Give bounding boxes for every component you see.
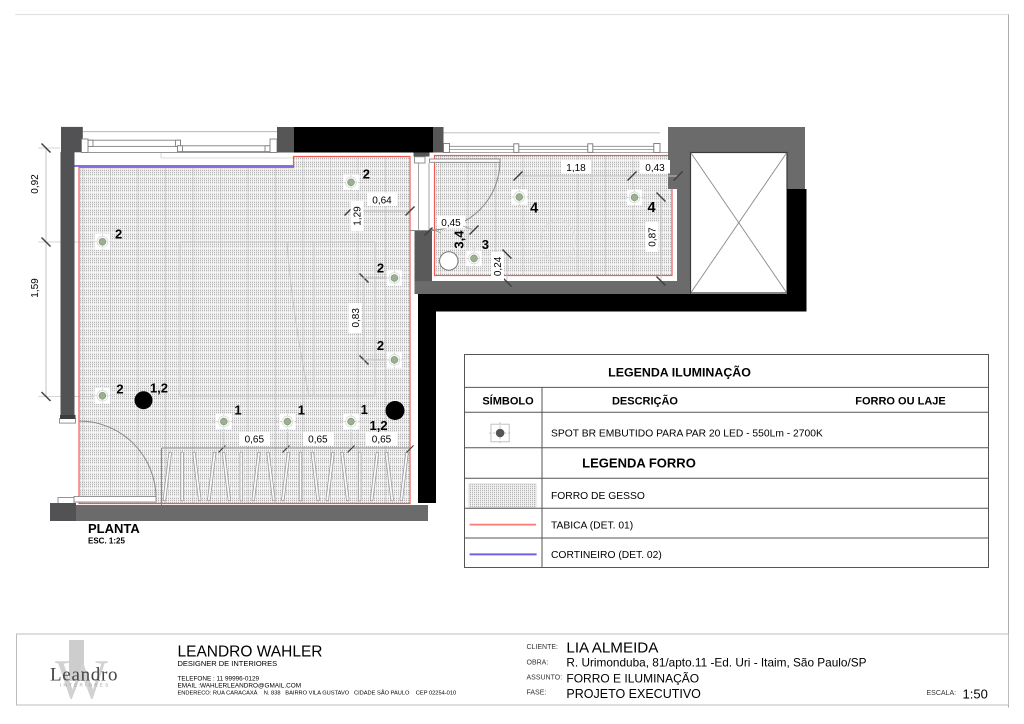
svg-text:ENDERECO: RUA CARACAXÁ N. 8: ENDERECO: RUA CARACAXÁ N. 838 BAIRRO VIL… <box>178 690 457 697</box>
svg-text:LEGENDA FORRO: LEGENDA FORRO <box>582 456 696 471</box>
svg-text:0,24: 0,24 <box>493 256 504 276</box>
svg-text:R. Urimonduba, 81/apto.11 -Ed.: R. Urimonduba, 81/apto.11 -Ed. Uri - Ita… <box>566 656 866 670</box>
svg-text:FORRO DE GESSO: FORRO DE GESSO <box>551 491 645 502</box>
svg-text:CLIENTE:: CLIENTE: <box>527 644 559 651</box>
svg-text:3,4: 3,4 <box>451 230 466 249</box>
svg-text:2: 2 <box>377 261 384 276</box>
svg-text:3: 3 <box>482 237 489 252</box>
svg-text:LEGENDA ILUMINAÇÃO: LEGENDA ILUMINAÇÃO <box>608 365 751 380</box>
svg-text:TABICA (DET. 01): TABICA (DET. 01) <box>551 520 633 531</box>
svg-text:0,43: 0,43 <box>645 163 665 174</box>
svg-text:4: 4 <box>530 201 538 217</box>
svg-text:1:50: 1:50 <box>963 687 988 702</box>
svg-text:SÍMBOLO: SÍMBOLO <box>482 395 534 408</box>
svg-text:SPOT BR EMBUTIDO PARA PAR 20 L: SPOT BR EMBUTIDO PARA PAR 20 LED - 550Lm… <box>551 429 823 440</box>
svg-text:CORTINEIRO (DET. 02): CORTINEIRO (DET. 02) <box>551 550 662 561</box>
svg-text:OBRA:: OBRA: <box>527 659 549 666</box>
svg-text:LEANDRO WAHLER: LEANDRO WAHLER <box>178 644 323 661</box>
svg-text:0,65: 0,65 <box>308 435 328 446</box>
svg-text:1,29: 1,29 <box>353 206 364 226</box>
svg-text:1: 1 <box>361 402 368 417</box>
svg-text:4: 4 <box>648 200 656 216</box>
svg-text:FORRO E ILUMINAÇÃO: FORRO E ILUMINAÇÃO <box>566 672 699 686</box>
svg-text:LIA ALMEIDA: LIA ALMEIDA <box>566 639 659 656</box>
svg-text:0,83: 0,83 <box>351 308 362 328</box>
svg-text:ESCALA:: ESCALA: <box>927 690 957 697</box>
svg-text:DESCRIÇÃO: DESCRIÇÃO <box>612 395 678 408</box>
svg-text:0,45: 0,45 <box>441 218 461 229</box>
svg-text:1,18: 1,18 <box>566 163 586 174</box>
svg-text:2: 2 <box>377 338 384 353</box>
svg-text:PROJETO EXECUTIVO: PROJETO EXECUTIVO <box>566 687 701 701</box>
svg-text:0,65: 0,65 <box>372 435 392 446</box>
svg-text:1: 1 <box>298 403 305 418</box>
svg-text:0,92: 0,92 <box>30 174 41 194</box>
svg-text:1,59: 1,59 <box>30 278 41 298</box>
svg-text:1,2: 1,2 <box>150 380 168 395</box>
svg-text:TELEFONE : 11 99996-0129: TELEFONE : 11 99996-0129 <box>178 676 260 683</box>
svg-text:1,2: 1,2 <box>370 418 388 433</box>
svg-text:ESC. 1:25: ESC. 1:25 <box>88 537 125 546</box>
svg-text:FASE:: FASE: <box>527 689 547 696</box>
svg-text:EMAIL :WAHLERLEANDRO@GMAIL.COM: EMAIL :WAHLERLEANDRO@GMAIL.COM <box>178 683 302 690</box>
svg-text:DESIGNER DE INTERIORES: DESIGNER DE INTERIORES <box>178 659 278 668</box>
svg-text:PLANTA: PLANTA <box>88 521 140 536</box>
svg-text:2: 2 <box>116 382 123 397</box>
svg-text:FORRO OU LAJE: FORRO OU LAJE <box>855 396 945 408</box>
svg-text:0,65: 0,65 <box>245 435 265 446</box>
svg-text:0,87: 0,87 <box>648 227 659 247</box>
svg-text:1: 1 <box>234 403 241 418</box>
svg-text:INTERIORES: INTERIORES <box>60 683 111 688</box>
svg-text:0,64: 0,64 <box>372 196 392 207</box>
svg-text:2: 2 <box>115 227 122 242</box>
svg-text:2: 2 <box>363 167 370 182</box>
svg-text:ASSUNTO:: ASSUNTO: <box>527 675 563 682</box>
